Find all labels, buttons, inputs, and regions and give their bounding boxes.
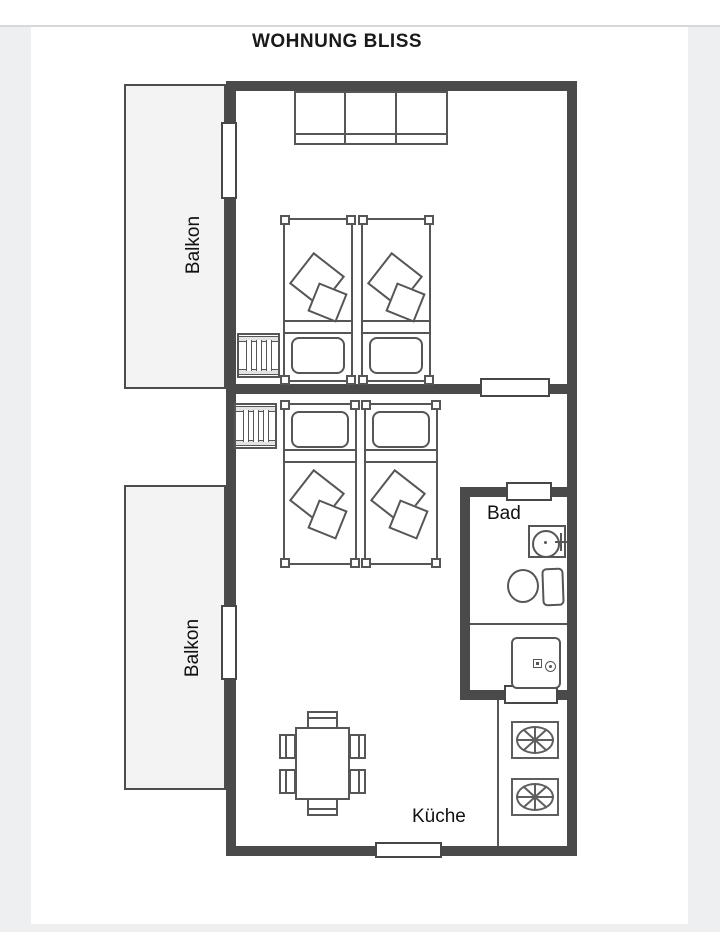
washer-knob-dot: [536, 662, 539, 665]
crib-bar: [253, 410, 259, 442]
viewer-top-strip: [0, 0, 720, 27]
chair-backrest: [285, 736, 287, 757]
chair-bottom: [307, 798, 338, 816]
balcony-bottom-label: Balkon: [182, 593, 206, 703]
wall-top: [226, 81, 577, 91]
balcony-top: [124, 84, 226, 389]
balcony-bottom: [124, 485, 226, 790]
pillow: [369, 337, 423, 374]
bed-post: [280, 375, 290, 385]
wall-right: [567, 81, 577, 856]
bed-post: [424, 375, 434, 385]
bed-post: [280, 400, 290, 410]
bed-1: [283, 218, 353, 382]
washer-knob: [545, 661, 556, 672]
bed-post: [358, 215, 368, 225]
crib-1: [237, 333, 280, 378]
chair-backrest: [285, 771, 287, 792]
crib-bar: [243, 410, 249, 442]
page-title: WOHNUNG BLISS: [187, 31, 487, 53]
sink-tap: [560, 533, 562, 551]
stove-burner-1: [511, 721, 559, 759]
chair-backrest: [358, 771, 360, 792]
bed-3: [283, 403, 357, 565]
washer-knob-dot: [549, 665, 552, 668]
chair-backrest: [309, 808, 336, 810]
bed-post: [280, 558, 290, 568]
bed-post: [431, 400, 441, 410]
blanket-fold: [285, 320, 351, 334]
sink: [528, 525, 566, 558]
chair-right-1: [349, 734, 366, 759]
bathroom-door-opening: [506, 482, 552, 501]
toilet-bowl: [507, 569, 539, 603]
window-top-left: [221, 122, 237, 199]
chair-left-2: [279, 769, 296, 794]
bed-post: [424, 215, 434, 225]
crib-bar: [263, 410, 269, 442]
sink-drain: [544, 541, 547, 544]
pillow: [291, 411, 349, 448]
stove-burner-2: [511, 778, 559, 816]
balcony-top-label: Balkon: [183, 190, 207, 300]
bed-post: [361, 400, 371, 410]
bed-2: [361, 218, 431, 382]
kitchen-label: Küche: [412, 806, 466, 828]
bathroom-partition-line: [470, 623, 567, 625]
crib-bar: [256, 340, 262, 371]
washing-machine: [511, 637, 561, 689]
bed-post: [431, 558, 441, 568]
blanket-fold: [363, 320, 429, 334]
bedroom-door-opening: [480, 378, 550, 397]
bed-post: [346, 375, 356, 385]
bed-post: [350, 400, 360, 410]
crib-2: [234, 403, 277, 449]
blanket-fold: [285, 449, 355, 463]
pillow: [372, 411, 430, 448]
kitchen-counter-line: [497, 700, 499, 846]
bed-post: [346, 215, 356, 225]
bathroom-wall-left: [460, 487, 470, 700]
bed-post: [358, 375, 368, 385]
entrance-door-opening: [375, 842, 442, 858]
crib-bar: [266, 340, 272, 371]
sofa: [294, 91, 448, 145]
bed-4: [364, 403, 438, 565]
pillow: [291, 337, 345, 374]
sofa-front-line: [296, 133, 446, 135]
sofa-seat-divider: [395, 93, 397, 143]
washer-knob: [533, 659, 542, 668]
bed-post: [350, 558, 360, 568]
bed-post: [361, 558, 371, 568]
chair-backrest: [358, 736, 360, 757]
crib-bar: [246, 340, 252, 371]
floorplan-viewer: WOHNUNG BLISS Balkon Balkon: [0, 0, 720, 932]
chair-top: [307, 711, 338, 729]
dining-table: [295, 727, 350, 800]
bathroom-label: Bad: [487, 503, 521, 525]
toilet-tank: [541, 568, 564, 607]
window-bottom-left: [221, 605, 237, 680]
chair-left-1: [279, 734, 296, 759]
chair-backrest: [309, 717, 336, 719]
sofa-seat-divider: [344, 93, 346, 143]
bed-post: [280, 215, 290, 225]
sink-basin: [532, 530, 560, 558]
blanket-fold: [366, 449, 436, 463]
chair-right-2: [349, 769, 366, 794]
